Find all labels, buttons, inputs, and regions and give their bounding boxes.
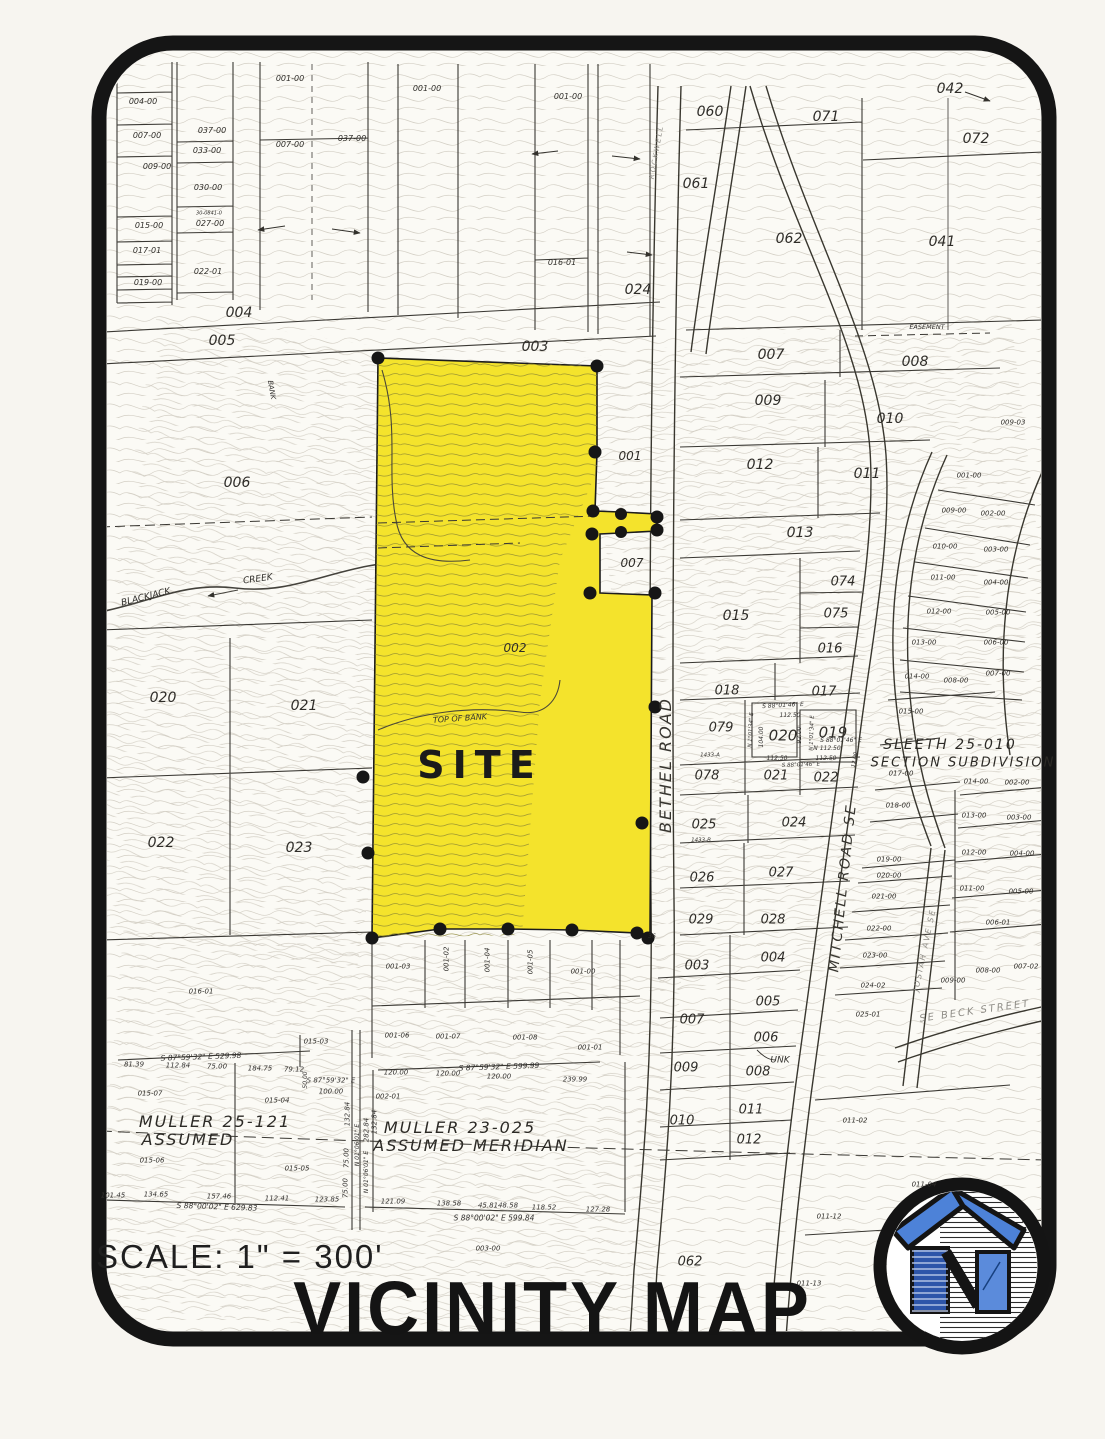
map-drawing: [0, 0, 1105, 1439]
vicinity-map-page: 004-00007-00009-00015-00017-01019-00037-…: [0, 0, 1105, 1439]
map-title: VICINITY MAP: [0, 1266, 1105, 1351]
map-content: [60, 51, 1087, 1354]
